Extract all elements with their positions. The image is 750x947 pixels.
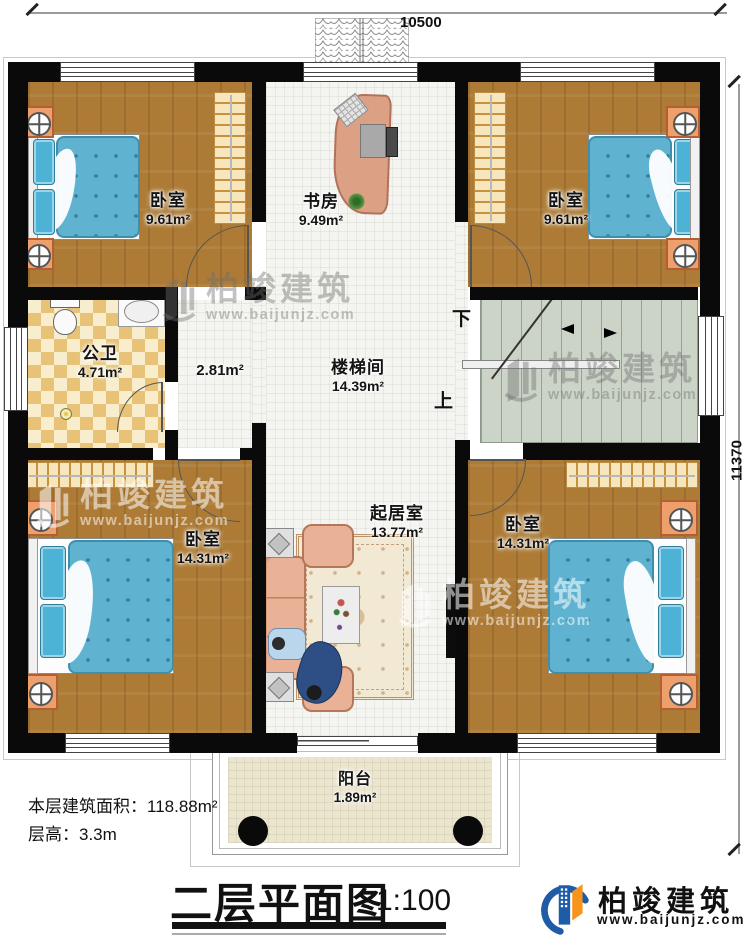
door-leaf xyxy=(161,382,163,432)
floor-area-text: 本层建筑面积：118.88m² xyxy=(28,792,218,817)
room-label-bedroom-br: 卧室 14.31m² xyxy=(463,515,583,552)
room-name: 卧室 xyxy=(143,530,263,550)
table-inlay xyxy=(268,533,291,556)
lamp-icon xyxy=(673,112,697,136)
balcony-sliding-door xyxy=(297,736,418,746)
window xyxy=(60,62,195,82)
stair-direction-arrow xyxy=(604,328,617,338)
person-sitting xyxy=(268,628,306,660)
bed-headboard xyxy=(690,134,700,240)
pillow xyxy=(33,139,55,185)
wall xyxy=(418,733,517,753)
room-label-balcony: 阳台 1.89m² xyxy=(295,771,415,806)
table-inlay xyxy=(268,677,291,700)
door-leaf xyxy=(470,225,472,287)
window xyxy=(517,733,657,753)
room-name: 起居室 xyxy=(337,504,457,524)
wall xyxy=(455,82,468,222)
column xyxy=(453,816,483,846)
pillow xyxy=(40,604,66,658)
wall xyxy=(470,287,698,300)
room-area: 13.77m² xyxy=(337,524,457,541)
wall xyxy=(657,733,720,753)
stairs xyxy=(480,295,698,443)
lamp-icon xyxy=(673,244,697,268)
room-label-bathroom: 公卫 4.71m² xyxy=(40,344,160,381)
wall xyxy=(523,443,720,460)
wardrobe xyxy=(474,92,506,224)
logo-building-icon xyxy=(538,876,594,936)
room-name: 公卫 xyxy=(40,344,160,364)
floor-drain xyxy=(60,408,72,420)
room-area: 9.61m² xyxy=(506,211,626,228)
lamp-icon xyxy=(669,508,693,532)
coffee-table xyxy=(322,586,360,644)
wall xyxy=(195,62,303,82)
wall xyxy=(8,410,28,753)
wall xyxy=(700,416,720,753)
stair-corridor-floor xyxy=(455,222,468,443)
stair-handrail xyxy=(462,360,620,369)
computer-tower xyxy=(386,127,398,157)
lamp-icon xyxy=(27,112,51,136)
side-table xyxy=(262,672,294,702)
room-area: 1.89m² xyxy=(295,790,415,806)
wall xyxy=(240,448,266,460)
room-area: 14.31m² xyxy=(463,535,583,552)
wall xyxy=(455,460,468,733)
pillow xyxy=(40,546,66,600)
right-dimension-label: 11370 xyxy=(729,426,746,496)
top-dimension-line xyxy=(30,12,727,14)
wall xyxy=(418,62,520,82)
window xyxy=(520,62,655,82)
room-label-living: 起居室 13.77m² xyxy=(337,504,457,541)
top-dimension-label: 10500 xyxy=(400,14,470,31)
door-leaf xyxy=(470,459,526,461)
room-name: 卧室 xyxy=(506,191,626,211)
wardrobe xyxy=(26,462,154,488)
dimension-tick xyxy=(25,3,38,16)
wall xyxy=(252,460,266,733)
nightstand xyxy=(660,674,698,710)
room-area: 9.61m² xyxy=(108,211,228,228)
room-label-study: 书房 9.49m² xyxy=(261,192,381,229)
room-name: 楼梯间 xyxy=(298,358,418,378)
stair-up-label: 上 xyxy=(434,386,453,413)
nightstand xyxy=(666,238,700,270)
column xyxy=(238,816,268,846)
wall xyxy=(8,448,153,460)
room-area: 14.39m² xyxy=(298,378,418,395)
window xyxy=(4,327,28,411)
stair-down-label: 下 xyxy=(452,304,471,331)
pillow xyxy=(658,604,684,658)
room-label-bedroom-tl: 卧室 9.61m² xyxy=(108,191,228,228)
wall xyxy=(8,287,178,300)
bed-headboard xyxy=(686,538,696,674)
stair-direction-arrow xyxy=(561,324,574,334)
room-area: 9.49m² xyxy=(261,212,381,229)
pillow xyxy=(33,189,55,235)
sofa xyxy=(260,556,306,680)
tv xyxy=(446,584,456,658)
lamp-icon xyxy=(669,682,693,706)
room-name: 书房 xyxy=(261,192,381,212)
window xyxy=(698,316,724,416)
room-label-stairwell: 楼梯间 14.39m² xyxy=(298,358,418,395)
lamp-icon xyxy=(29,508,53,532)
toilet xyxy=(53,309,77,335)
room-label-bedroom-tr: 卧室 9.61m² xyxy=(506,191,626,228)
wall xyxy=(245,287,266,300)
dimension-tick xyxy=(713,3,726,16)
pillow xyxy=(658,546,684,600)
wall xyxy=(455,440,470,460)
nightstand xyxy=(666,106,700,138)
floor-height-text: 层高：3.3m xyxy=(28,820,117,845)
plan-scale: 1:100 xyxy=(376,884,451,918)
room-area: 2.81m² xyxy=(160,362,280,380)
computer-monitor xyxy=(360,124,386,158)
door-leaf xyxy=(178,459,240,461)
door-leaf xyxy=(247,225,249,287)
window xyxy=(303,62,418,82)
title-underline-thin xyxy=(172,933,446,935)
floorplan-canvas: 10500 11370 下 上 xyxy=(0,0,750,947)
room-name: 卧室 xyxy=(108,191,228,211)
nightstand xyxy=(660,500,698,536)
room-label-hallway: 2.81m² xyxy=(160,362,280,380)
room-area: 14.31m² xyxy=(143,550,263,567)
lamp-icon xyxy=(27,244,51,268)
person-head xyxy=(305,683,324,702)
brand-logo-icon xyxy=(538,876,594,941)
person-head xyxy=(272,637,285,650)
side-table xyxy=(262,528,294,558)
room-name: 卧室 xyxy=(463,515,583,535)
title-underline xyxy=(172,922,446,929)
wall xyxy=(165,430,178,460)
room-name: 阳台 xyxy=(295,771,415,790)
wall xyxy=(170,733,297,753)
lamp-icon xyxy=(29,682,53,706)
room-area: 4.71m² xyxy=(40,364,160,381)
sink xyxy=(124,300,159,323)
wall xyxy=(8,733,65,753)
room-label-bedroom-bl: 卧室 14.31m² xyxy=(143,530,263,567)
window xyxy=(65,733,170,753)
brand-site: www.baijunjz.com xyxy=(597,912,746,927)
bed-headboard xyxy=(28,538,38,674)
wall xyxy=(700,62,720,316)
wardrobe xyxy=(566,462,698,488)
